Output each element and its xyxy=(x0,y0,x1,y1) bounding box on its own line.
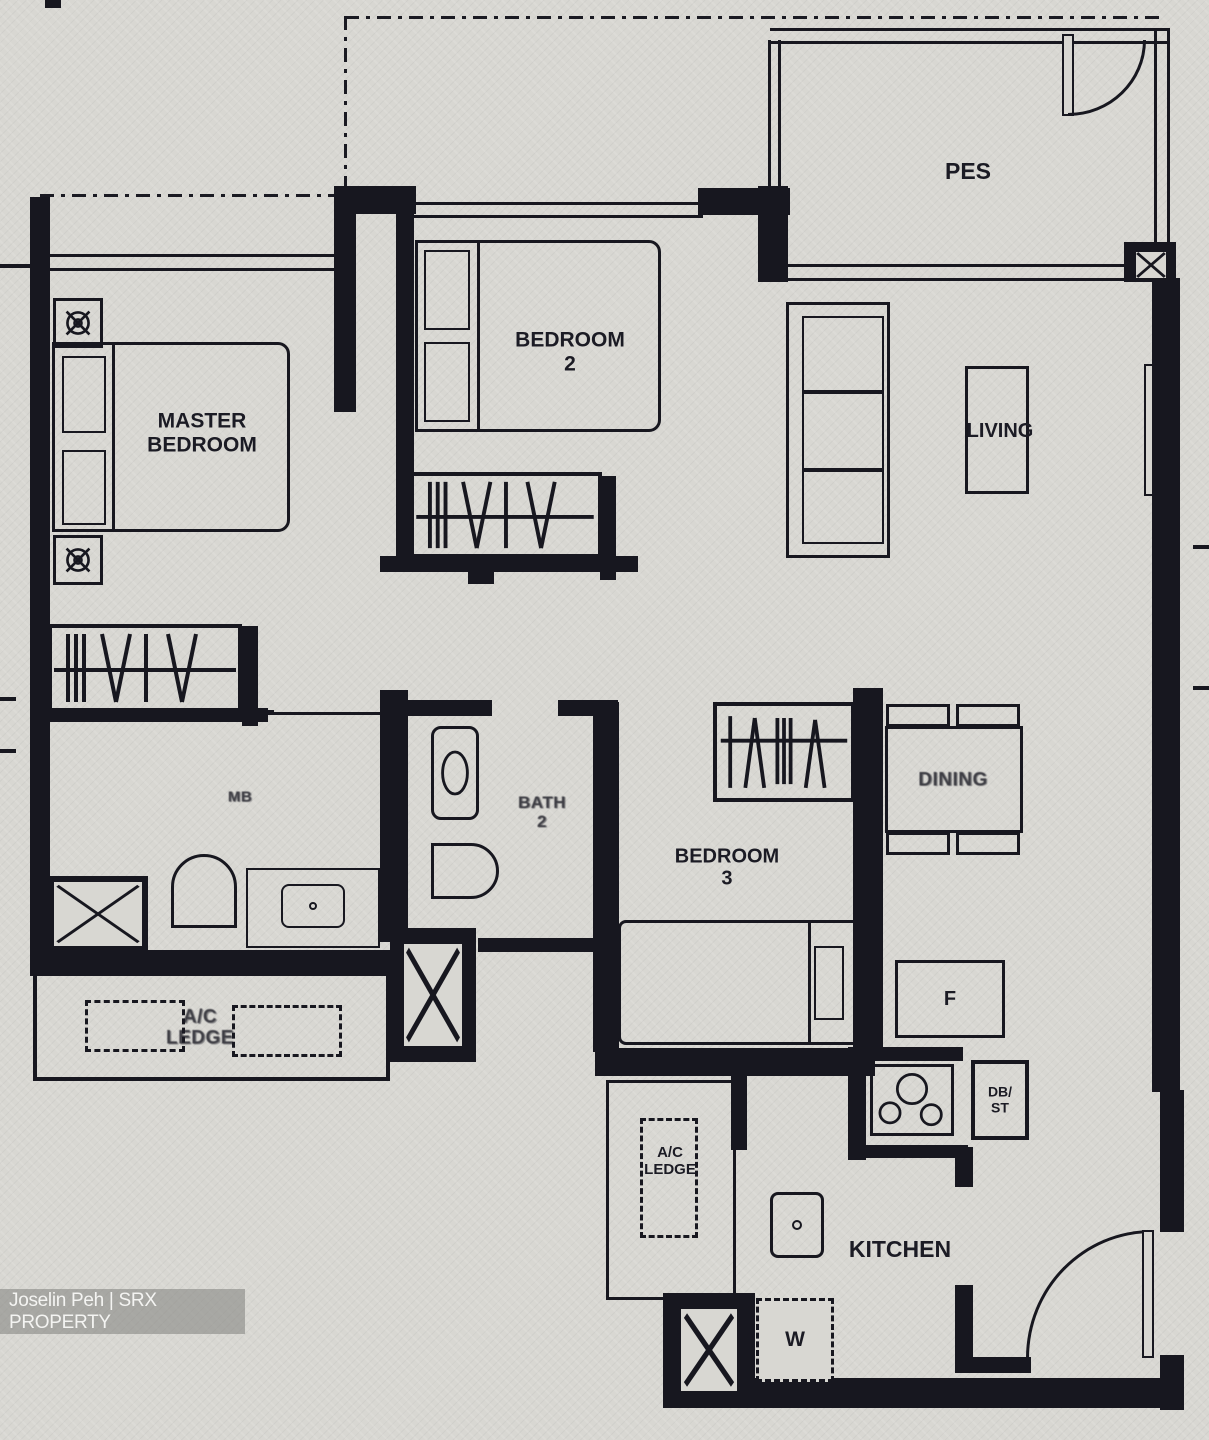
label-line: ST xyxy=(991,1099,1009,1115)
wall-kitchen-right xyxy=(1160,1090,1184,1232)
label-line: BATH xyxy=(518,793,566,812)
label-washer: W xyxy=(785,1328,805,1352)
label-bedroom3: BEDROOM 3 xyxy=(675,846,779,891)
window-wall-pes-left xyxy=(768,40,781,190)
wall-kitchen-top xyxy=(866,1145,968,1158)
label-db-st: DB/ ST xyxy=(988,1084,1012,1115)
pes-shaft-box xyxy=(1134,250,1168,280)
wall-bath2-top-left xyxy=(408,700,492,716)
label-line: DB/ xyxy=(988,1083,1012,1099)
master-nightstand xyxy=(53,298,103,348)
label-ac-ledge-left: A/C LEDGE xyxy=(166,1007,234,1050)
label-pes: PES xyxy=(945,159,991,185)
living-sliding-door xyxy=(1144,364,1154,496)
label-dining: DINING xyxy=(918,769,988,790)
wall-foyer-corner-v xyxy=(848,1060,866,1160)
basin-bowl xyxy=(434,729,476,817)
bedroom2-wardrobe-flange xyxy=(600,476,616,580)
wall-corridor-line xyxy=(268,712,388,715)
boundary-dashdot-left xyxy=(40,194,346,197)
label-bedroom2: BEDROOM 2 xyxy=(515,328,625,375)
toilet-bath2 xyxy=(431,843,499,899)
basin-bath2 xyxy=(431,726,479,820)
wall-mbr-br2-divider xyxy=(334,186,356,412)
label-line: MASTER xyxy=(158,409,247,432)
bedroom2-bed-pillow xyxy=(424,342,470,422)
vanity-sink-master xyxy=(281,884,345,928)
master-bed-pillow xyxy=(62,450,106,525)
label-master-bath: MB xyxy=(228,790,252,807)
wall-kitchen-top-stub xyxy=(955,1147,973,1187)
label-line: 2 xyxy=(564,352,576,375)
dining-chair xyxy=(956,832,1020,855)
wall-pes-left-block xyxy=(758,186,788,282)
wall-right-living xyxy=(1152,278,1180,1092)
tick-mark xyxy=(1193,686,1209,690)
sofa-cushion xyxy=(802,470,884,544)
window-wall-pes-bottom xyxy=(786,264,1126,281)
label-line: 3 xyxy=(721,868,732,890)
lamp-icon xyxy=(56,301,100,345)
entrance-door-swing-arc xyxy=(1026,1230,1152,1358)
watermark-banner: Joselin Peh | SRX PROPERTY xyxy=(0,1289,245,1334)
wall-left xyxy=(30,197,50,967)
sofa-cushion xyxy=(802,392,884,470)
toilet-master xyxy=(171,854,237,928)
shaft-box xyxy=(404,944,462,1046)
label-line: BEDROOM xyxy=(147,433,257,456)
floor-plan: PES MASTER BEDROOM BEDROOM 2 LIVING DINI… xyxy=(0,0,1209,1440)
window-wall-pes-right xyxy=(1154,28,1170,260)
master-bed-pillow-line xyxy=(112,344,115,530)
master-nightstand xyxy=(53,535,103,585)
hanger-icons xyxy=(52,628,238,708)
label-line: A/C xyxy=(183,1007,217,1028)
boundary-dashdot-vertical xyxy=(344,16,347,198)
drain-dot xyxy=(773,1195,821,1255)
hanger-icons xyxy=(412,476,598,554)
bedroom3-bed-pillow xyxy=(814,946,844,1020)
sofa-cushion xyxy=(802,316,884,392)
hanger-icons xyxy=(717,706,851,798)
hob-burners xyxy=(873,1067,951,1133)
ac-unit-dashed-box xyxy=(232,1005,342,1057)
label-living: LIVING xyxy=(967,420,1034,442)
master-wardrobe xyxy=(48,624,242,712)
bedroom2-bed-pillow-line xyxy=(477,242,480,430)
x-glyph xyxy=(54,882,142,946)
bedroom3-wardrobe xyxy=(713,702,855,802)
pes-door-swing-arc xyxy=(1068,40,1146,116)
master-bed-pillow xyxy=(62,356,106,433)
x-glyph xyxy=(1136,252,1166,278)
tick-mark xyxy=(45,0,61,8)
label-master-bedroom: MASTER BEDROOM xyxy=(147,409,257,456)
bedroom3-bed-pillow-line xyxy=(808,922,811,1043)
bedroom2-bed-pillow xyxy=(424,250,470,330)
shaft-box xyxy=(681,1309,737,1391)
wall-foyer-corner-h xyxy=(848,1047,963,1061)
x-glyph xyxy=(404,944,462,1046)
drain-dot xyxy=(283,886,343,926)
label-line: A/C xyxy=(657,1144,683,1161)
boundary-dashdot-top xyxy=(345,16,1165,19)
bedroom2-wardrobe xyxy=(408,472,602,558)
wall-kitchen-right-bottom xyxy=(1160,1355,1184,1410)
label-fridge: F xyxy=(944,988,956,1010)
label-kitchen: KITCHEN xyxy=(849,1237,951,1263)
tick-mark xyxy=(0,264,30,268)
label-line: LEDGE xyxy=(166,1028,234,1049)
wall-bath2-bottom xyxy=(478,938,596,952)
tick-mark xyxy=(1193,545,1209,549)
watermark-text: Joselin Peh | SRX PROPERTY xyxy=(0,1290,245,1334)
kitchen-sink xyxy=(770,1192,824,1258)
window-wall-bedroom2 xyxy=(413,202,703,218)
master-wardrobe-band xyxy=(46,708,268,722)
entrance-door-leaf xyxy=(1142,1230,1154,1358)
dining-chair xyxy=(956,704,1020,727)
x-glyph xyxy=(681,1309,737,1391)
dining-chair xyxy=(886,832,950,855)
dining-chair xyxy=(886,704,950,727)
hob xyxy=(870,1064,954,1136)
label-line: 2 xyxy=(537,812,547,831)
wall-entry-l-horizontal xyxy=(955,1357,1031,1373)
wall-stub xyxy=(468,570,494,584)
label-line: BEDROOM xyxy=(675,846,779,868)
wall-bedroom3-left xyxy=(593,702,619,1052)
window-wall-master-bedroom xyxy=(46,254,338,271)
wall-bath-column xyxy=(380,690,408,942)
lamp-icon xyxy=(56,538,100,582)
label-line: BEDROOM xyxy=(515,328,625,351)
tick-mark xyxy=(0,749,16,753)
label-bath2: BATH 2 xyxy=(518,793,566,831)
label-line: LEDGE xyxy=(644,1161,696,1178)
label-ac-ledge-mid: A/C LEDGE xyxy=(644,1145,696,1179)
tick-mark xyxy=(0,697,16,701)
shower-stall xyxy=(48,876,148,952)
